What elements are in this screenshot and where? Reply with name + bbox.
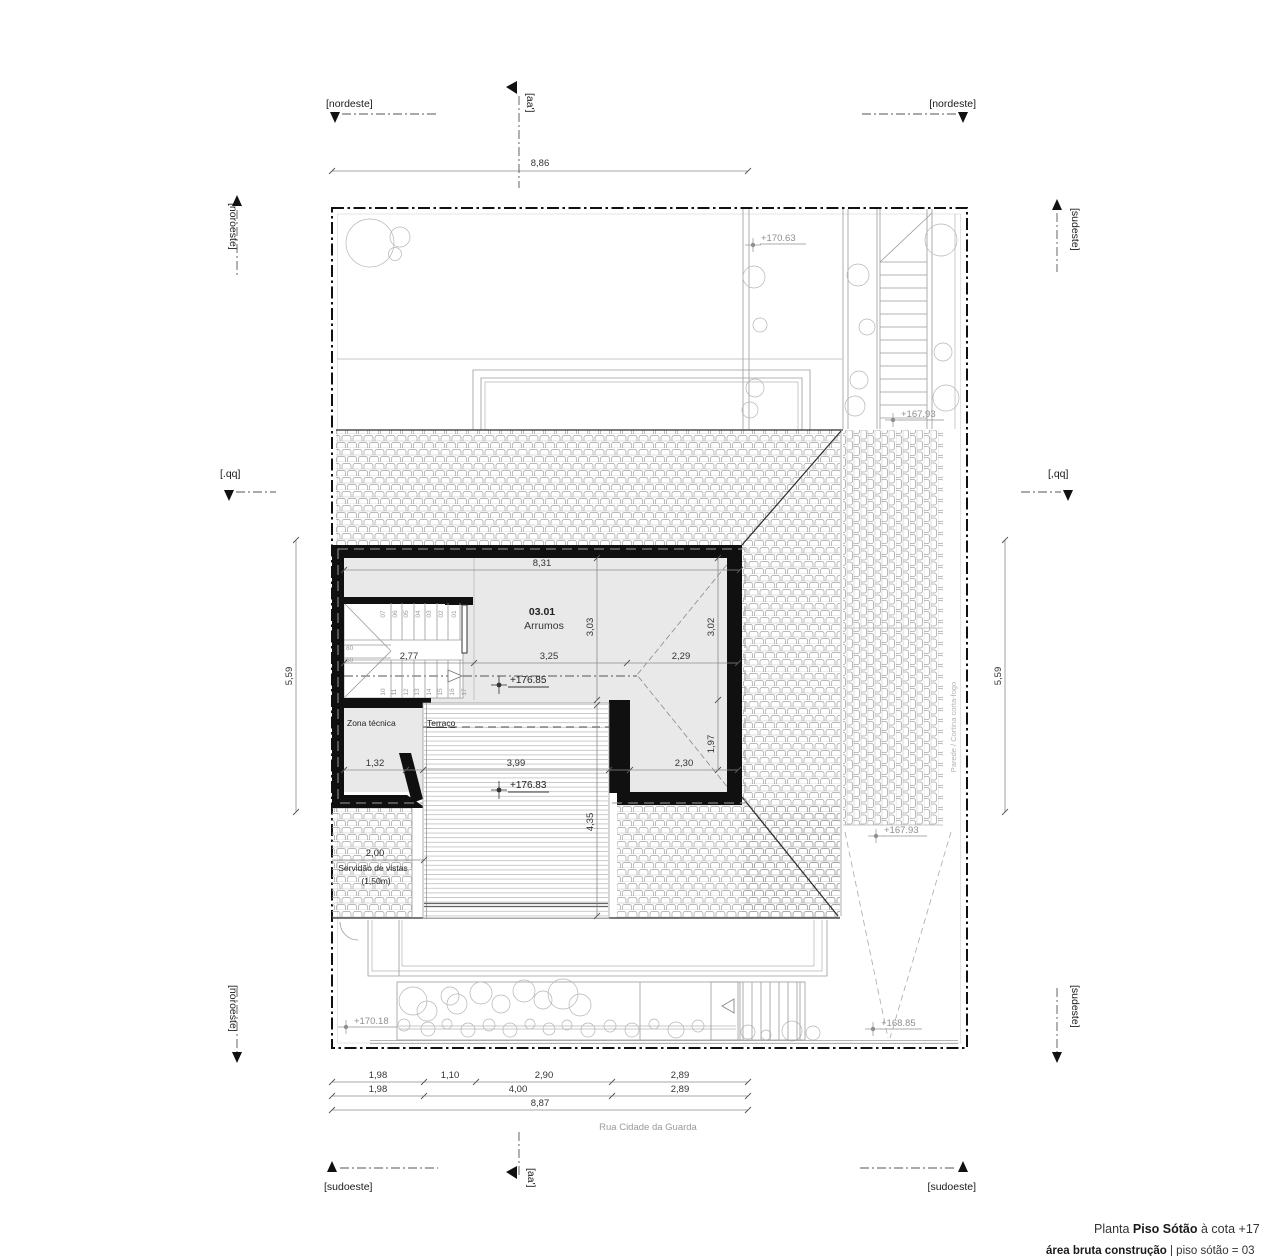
marker-arrow-icon: [330, 112, 340, 123]
marker-nordeste-right: [nordeste]: [929, 98, 976, 110]
dim-label: 5,59: [993, 667, 1004, 686]
dim-label: 4,00: [509, 1084, 528, 1095]
plant-icon: [850, 371, 868, 389]
stair-step-number: 13: [414, 688, 421, 696]
servidao-label: Servidão de vistas: [338, 863, 407, 873]
drawing-title: Planta Piso Sótão à cota +17: [1094, 1222, 1260, 1236]
svg-text:+167.93: +167.93: [884, 825, 919, 836]
svg-text:+170.18: +170.18: [354, 1016, 389, 1027]
plant-icon: [934, 343, 952, 361]
level-marker: +170.18: [338, 1016, 397, 1034]
stair-width-label: 80: [346, 645, 354, 652]
dim-label: 3,03: [585, 618, 596, 637]
dim-label: 2,77: [400, 651, 419, 662]
room-name: Arrumos: [524, 620, 564, 632]
dim-label: 2,89: [671, 1084, 690, 1095]
stair-step-number: 14: [426, 688, 433, 696]
plant-icon: [925, 224, 957, 256]
servidao-value: (1,50m): [361, 876, 390, 886]
level-marker: +167.93: [885, 409, 944, 427]
stair-step-number: 05: [403, 610, 410, 618]
plant-icon: [742, 402, 758, 418]
svg-text:+176.85: +176.85: [510, 675, 547, 686]
garden-plants: [398, 979, 820, 1041]
subtitle-suffix: | piso sótão = 03: [1167, 1245, 1255, 1256]
marker-arrow-icon: [232, 195, 242, 206]
level-marker: +167.93: [868, 825, 927, 843]
marker-arrow-icon: [958, 112, 968, 123]
dim-label: 3,02: [706, 618, 717, 637]
marker-aa-top: [aa']: [524, 93, 536, 113]
exterior-stair-bottom: [711, 982, 805, 1040]
stair-step-number: 12: [403, 688, 410, 696]
svg-text:+170.63: +170.63: [761, 233, 796, 244]
stair-step-number: 16: [449, 688, 456, 696]
marker-arrow-icon: [232, 1052, 242, 1063]
dim-label: 2,00: [366, 848, 385, 859]
stair-step-number: 10: [380, 688, 387, 696]
marker-sudoeste-right: [sudoeste]: [928, 1181, 977, 1193]
terrace: [423, 703, 609, 918]
level-marker: +170.63: [745, 233, 806, 252]
tree-icon: [346, 219, 394, 267]
dim-label: 8,31: [533, 558, 552, 569]
stair-direction-arrow-icon: [722, 999, 734, 1013]
dim-label: 2,30: [675, 758, 694, 769]
title-prefix: Planta: [1094, 1222, 1133, 1236]
dim-label: 1,97: [706, 735, 717, 754]
marker-arrow-icon: [506, 81, 517, 94]
dim-label: 5,59: [284, 667, 295, 686]
dim-label: 1,10: [441, 1070, 460, 1081]
marker-arrow-icon: [224, 490, 234, 501]
stair-step-number: 07: [380, 610, 387, 618]
marker-sudoeste-left: [sudoeste]: [324, 1181, 373, 1193]
zona-tecnica-label: Zona técnica: [347, 718, 396, 728]
stair-step-number: 06: [392, 610, 399, 618]
stair-step-number: 03: [426, 610, 433, 618]
title-bold: Piso Sótão: [1133, 1222, 1198, 1236]
svg-text:+168.85: +168.85: [881, 1018, 916, 1029]
skylight-outline: [473, 370, 810, 430]
stair-step-number: 04: [415, 610, 422, 618]
dim-label: 8,87: [531, 1098, 550, 1109]
drawing-subtitle: área bruta construção | piso sótão = 03: [1046, 1245, 1255, 1256]
marker-arrow-icon: [958, 1161, 968, 1172]
dim-label: 1,98: [369, 1084, 388, 1095]
floor-plan-page: 07 06 05 04 03 02 01 10 11 12 13 14 15 1…: [0, 0, 1262, 1256]
marker-aa-bottom: [aa']: [525, 1168, 537, 1188]
dim-label: 3,99: [507, 758, 526, 769]
marker-qq-right: [,qq]: [1048, 468, 1069, 480]
floor-plan-drawing: 07 06 05 04 03 02 01 10 11 12 13 14 15 1…: [0, 0, 1262, 1256]
window: [462, 605, 467, 653]
plant-icon: [847, 264, 869, 286]
dim-label: 2,90: [535, 1070, 554, 1081]
dim-label: 8,86: [531, 158, 550, 169]
dim-label: 1,98: [369, 1070, 388, 1081]
svg-text:+167.93: +167.93: [901, 409, 936, 420]
dim-label: 4,35: [585, 813, 596, 832]
ramp: [845, 832, 951, 1038]
marker-sudeste-top: [sudeste]: [1069, 208, 1081, 251]
stair-step-number: 01: [451, 610, 458, 618]
subtitle-bold: área bruta construção: [1046, 1245, 1167, 1256]
stair-step-number: 17: [461, 688, 468, 696]
plant-icon: [743, 266, 765, 288]
tree-icon: [389, 248, 402, 261]
dim-label: 2,29: [672, 651, 691, 662]
room-number: 03.01: [529, 606, 555, 618]
marker-qq-left: [.qq]: [220, 468, 241, 480]
street-label: Rua Cidade da Guarda: [599, 1122, 697, 1133]
marker-nordeste-left: [nordeste]: [326, 98, 373, 110]
svg-text:+176.83: +176.83: [510, 780, 547, 791]
dim-label: 1,32: [366, 758, 385, 769]
marker-arrow-icon: [327, 1161, 337, 1172]
parede-note: Parede / Cortina corta-fogo: [949, 682, 958, 772]
marker-sudeste-bottom: [sudeste]: [1069, 985, 1081, 1028]
stair-step-number: 11: [391, 688, 398, 695]
stair-step-number: 15: [437, 688, 444, 696]
terraco-label: Terraço: [427, 718, 456, 728]
exterior-stair-top: [843, 209, 959, 429]
plant-icon: [859, 319, 875, 335]
lower-strip: [340, 920, 958, 1044]
dim-label: 3,25: [540, 651, 559, 662]
marker-arrow-icon: [1063, 490, 1073, 501]
plant-icon: [753, 318, 767, 332]
title-suffix: à cota +17: [1198, 1222, 1260, 1236]
marker-arrow-icon: [506, 1166, 517, 1179]
marker-arrow-icon: [1052, 199, 1062, 210]
stair-step-number: 02: [438, 610, 445, 618]
marker-arrow-icon: [1052, 1052, 1062, 1063]
dim-label: 2,89: [671, 1070, 690, 1081]
